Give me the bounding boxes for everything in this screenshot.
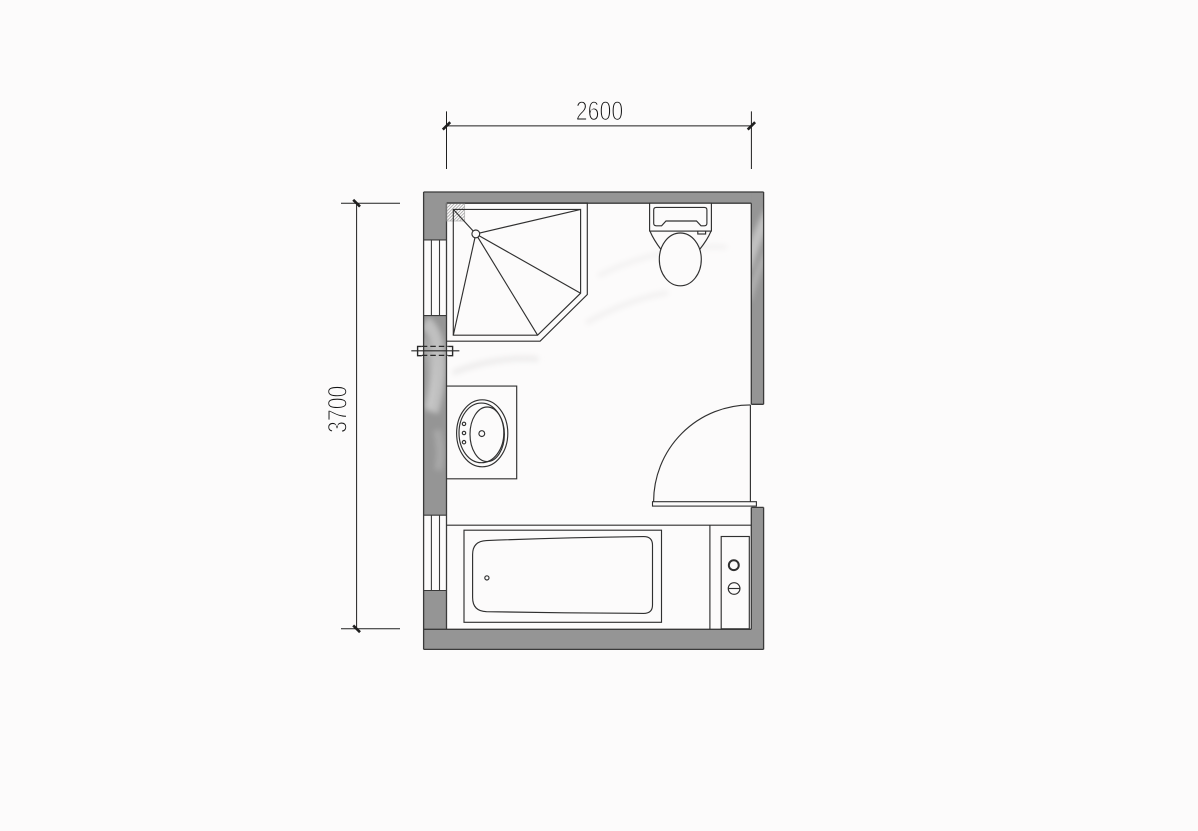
svg-text:3700: 3700 xyxy=(323,386,353,433)
svg-text:2600: 2600 xyxy=(576,97,623,127)
